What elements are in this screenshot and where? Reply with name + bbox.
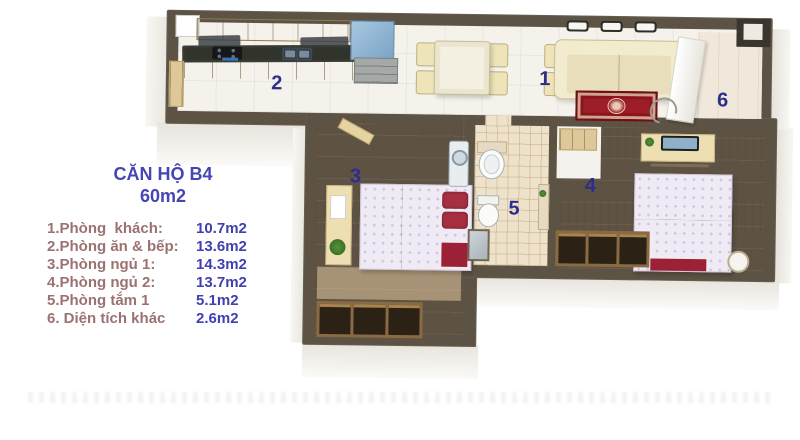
room-area: 5.1m2 — [196, 292, 239, 309]
dining-chair — [488, 71, 508, 95]
bedroom2-wardrobe — [555, 230, 649, 267]
bath-plant — [539, 190, 546, 197]
skirt-strip-right — [771, 29, 790, 129]
legend: CĂN HỘ B4 60m2 1.Phòng khách: 10.7m2 2.P… — [40, 163, 290, 207]
door-gap-bathroom — [485, 115, 511, 126]
room-area: 2.6m2 — [196, 310, 239, 327]
legend-row: 5.Phòng tắm 1 5.1m2 — [47, 292, 287, 310]
room-name: 3.Phòng ngủ 1: — [47, 256, 155, 273]
legend-row: 4.Phòng ngủ 2: 13.7m2 — [47, 274, 287, 292]
room-name: 2.Phòng ăn & bếp: — [47, 238, 179, 255]
bedroom1-carpet — [317, 267, 461, 301]
dining-table — [434, 40, 491, 95]
window-icon — [635, 21, 657, 32]
room-area: 13.6m2 — [196, 238, 247, 255]
dining-chair — [488, 43, 508, 67]
refrigerator — [350, 20, 395, 61]
legend-rows: 1.Phòng khách: 10.7m2 2.Phòng ăn & bếp: … — [47, 220, 287, 328]
shower-panel — [467, 229, 489, 261]
bedroom2-closet — [559, 128, 597, 151]
window-icon — [601, 21, 623, 32]
apartment-title: CĂN HỘ B4 — [40, 163, 286, 185]
skirt-bedroom1-bottom — [302, 343, 478, 379]
room-name: 4.Phòng ngủ 2: — [47, 274, 155, 291]
room-label-living: 1 — [534, 68, 556, 91]
room-label-other: 6 — [711, 89, 733, 112]
desk-plant — [645, 137, 654, 146]
room-name: 6. Diện tích khác — [47, 310, 165, 327]
bedroom1-wardrobe — [316, 301, 422, 338]
room-label-kitchen: 2 — [266, 72, 288, 95]
window-icon — [567, 20, 589, 31]
laptop — [661, 136, 699, 152]
skirt-kitchen-bottom — [157, 123, 310, 167]
room-label-bedroom1: 3 — [344, 165, 366, 188]
kitchen-gray-cabinet — [354, 57, 398, 84]
plant — [329, 239, 345, 255]
room-area: 14.3m2 — [196, 256, 247, 273]
area-rug — [575, 90, 657, 121]
legend-row: 6. Diện tích khác 2.6m2 — [47, 310, 287, 328]
dresser-tv — [330, 195, 346, 219]
legend-row: 3.Phòng ngủ 1: 14.3m2 — [47, 256, 287, 274]
washing-machine — [448, 141, 469, 187]
room-name: 1.Phòng khách: — [47, 220, 163, 237]
legend-row: 1.Phòng khách: 10.7m2 — [47, 220, 287, 238]
legend-row: 2.Phòng ăn & bếp: 13.6m2 — [47, 238, 287, 256]
room-area: 10.7m2 — [196, 220, 247, 237]
room-label-bedroom2: 4 — [579, 175, 601, 198]
room-name: 5.Phòng tắm 1 — [47, 292, 150, 309]
kitchen-sink — [282, 47, 312, 60]
skirt-bedroom2-right — [775, 127, 793, 283]
faint-watermark — [28, 392, 776, 403]
apartment-total-area: 60m2 — [40, 185, 286, 207]
entry-cabinet — [168, 61, 184, 107]
floor-plan-page: 1 2 3 4 5 6 CĂN HỘ B4 60m2 1.Phòng khách… — [0, 0, 800, 440]
room-label-bathroom: 5 — [503, 197, 525, 220]
room-area: 13.7m2 — [196, 274, 247, 291]
bedroom1-bed — [359, 183, 472, 271]
column-top-right — [736, 19, 770, 47]
